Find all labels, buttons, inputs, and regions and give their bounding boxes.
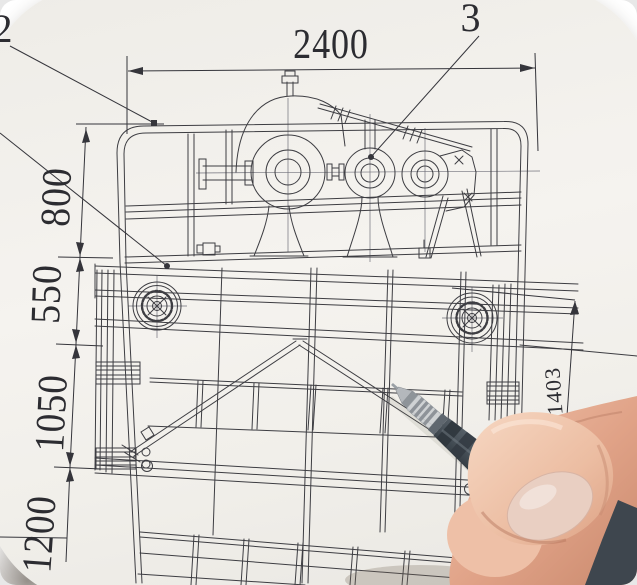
hand-holding-pen [0,0,637,585]
photo-of-technical-drawing: 2400 2 3 800 550 1050 1200 1403 [0,0,637,585]
